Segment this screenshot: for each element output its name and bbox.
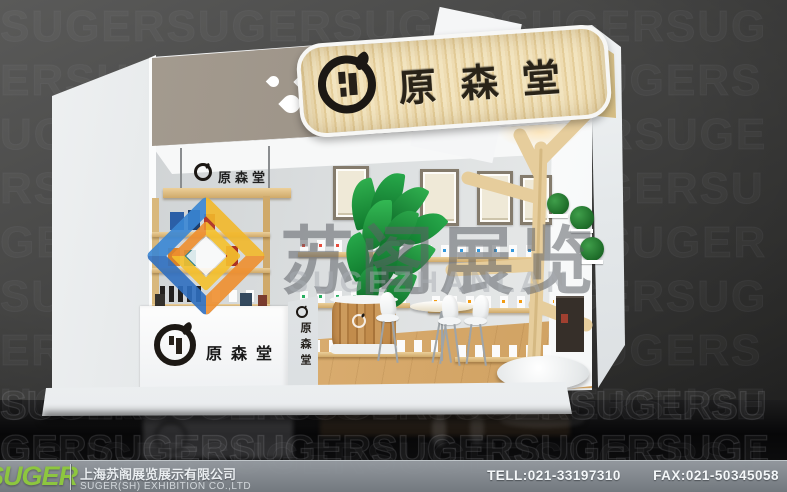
chair-seat: [376, 314, 399, 322]
hanging-shelf: [163, 188, 291, 198]
footer-divider: [70, 464, 71, 490]
reception-counter: 原森堂: [140, 306, 288, 397]
footer-tel: TELL:021-33197310: [487, 468, 621, 483]
footer-fax: FAX:021-50345058: [653, 468, 779, 483]
footer-bar: SUGER 上海苏阁展览展示有限公司 SUGER(SH) EXHIBITION …: [0, 460, 787, 492]
footer-company-en: SUGER(SH) EXHIBITION CO.,LTD: [80, 481, 251, 492]
fascia-sign-text: 原森堂: [396, 45, 585, 113]
reflection-logo: [154, 420, 188, 454]
counter-logo-icon: [154, 324, 196, 366]
counter-side-text: 原森堂: [297, 322, 313, 370]
hanging-sign-text: 原森堂: [218, 167, 269, 186]
watermark-en-text: SUGEZHANLAN: [288, 266, 573, 300]
counter-sign-text: 原森堂: [206, 340, 281, 364]
watermark-diamond-logo: [148, 198, 264, 314]
hanging-brand-logo-icon: [194, 163, 212, 181]
footer-brand-logo: SUGER: [0, 461, 77, 492]
hanging-rod: [180, 148, 182, 190]
brand-logo-icon: [316, 54, 378, 116]
platform-shadow: [42, 412, 582, 421]
booth-render-image: SUGERSUGERSUGERSUGERSUGERSUGERSUGERSUGER…: [0, 0, 787, 492]
footer-contact: TELL:021-33197310 FAX:021-50345058: [487, 468, 779, 483]
